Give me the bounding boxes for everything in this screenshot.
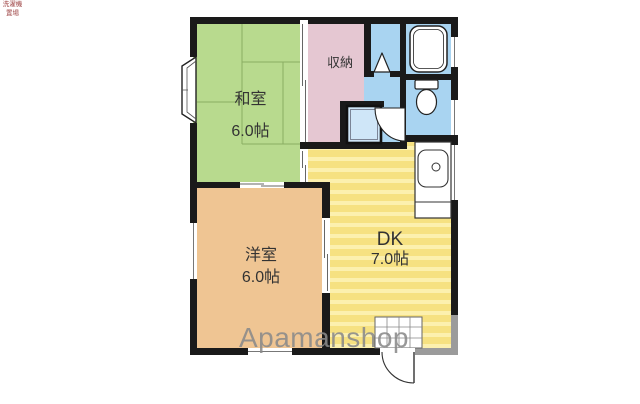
watermark: Apamanshop [190,322,458,354]
bay-window-icon [182,57,196,123]
western-size: 6.0帖 [197,267,325,289]
washitsu-dk-door [300,149,308,182]
dk-label: DK 7.0帖 [330,230,450,270]
washitsu-name: 和室 [197,84,304,116]
bathtub-icon [410,26,447,72]
washitsu-western-fusuma [240,182,284,188]
washitsu-label: 和室 6.0帖 [197,84,304,148]
washitsu-size: 6.0帖 [197,116,304,148]
dk-name: DK [330,230,450,250]
kitchen-sink-icon [415,142,451,218]
western-label: 洋室 6.0帖 [197,245,325,289]
western-name: 洋室 [197,245,325,267]
dk-size: 7.0帖 [330,250,450,270]
floorplan: 和室 6.0帖 収納 DK 7.0帖 洋室 6.0帖 洗濯機置場 Apamans… [0,0,640,404]
toilet-icon [415,80,438,115]
closet-label: 収納 [308,56,372,69]
closet-name: 収納 [308,56,372,69]
